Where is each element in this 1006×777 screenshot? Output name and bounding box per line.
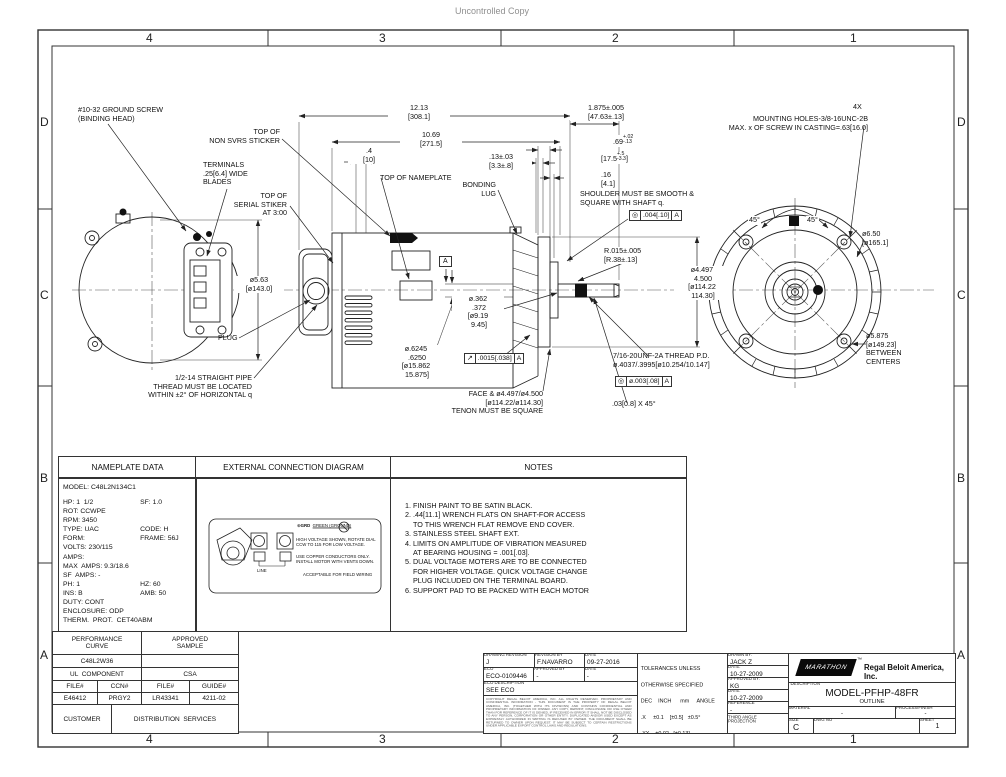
connection-note-2: USE COPPER CONDUCTORS ONLY. INSTALL MOTO…: [296, 555, 374, 565]
zone-right-b: B: [957, 471, 965, 485]
ul-file-value: E46412: [53, 692, 97, 704]
connection-note-3: ACCEPTABLE FOR FIELD WIRING: [303, 573, 372, 578]
dim-175-tol: +.5-3.3: [617, 152, 626, 162]
zone-bottom-2: 2: [612, 732, 619, 746]
title-block: MARATHON ™ Regal Beloit America, Inc. DE…: [788, 653, 956, 734]
nameplate-row: ENCLOSURE: ODP: [63, 607, 196, 616]
dim-point4: .4 [10]: [348, 147, 390, 164]
zone-top-2: 2: [612, 31, 619, 45]
zone-top-1: 1: [850, 31, 857, 45]
zone-bottom-1: 1: [850, 732, 857, 746]
eco-approved-by: -: [534, 673, 583, 680]
zone-right-a: A: [957, 648, 965, 662]
concentricity-icon: ◎: [616, 377, 627, 386]
nameplate-row: AMPS:: [63, 553, 196, 562]
marathon-logo: MARATHON: [795, 659, 857, 676]
dim-175-close: ]: [626, 154, 628, 163]
dim-r-fillet: R.015±.005 [R.38±.13]: [603, 247, 642, 264]
drawing-sheet: Uncontrolled Copy 4 3 2 1 4 3 2 1 D C B …: [0, 0, 1006, 777]
csa-file-value: LR43341: [141, 692, 189, 704]
notes-header: NOTES: [390, 456, 687, 478]
zone-bottom-4: 4: [146, 732, 153, 746]
zone-bottom-3: 3: [379, 732, 386, 746]
ul-ccn-value: PRGY2: [97, 692, 141, 704]
ul-component-label: UL COMPONENT: [53, 667, 141, 680]
dim-175-base: [17.5: [601, 154, 617, 163]
logo-row: MARATHON ™ Regal Beloit America, Inc.: [789, 654, 955, 683]
eco-date: -: [585, 673, 638, 680]
nameplate-model: MODEL: C48L2N134C1: [63, 483, 196, 492]
nameplate-row: FORM:FRAME: 56J: [63, 534, 196, 543]
ul-file-header: FILE#: [53, 680, 97, 692]
connection-line-label: LINE: [257, 569, 267, 574]
nameplate-row: ROT: CCWPE: [63, 507, 196, 516]
customer-value: DISTRIBUTION SERVICES: [111, 704, 238, 733]
ul-ccn-header: CCN#: [97, 680, 141, 692]
callout-terminals: TERMINALS .25[6.4] WIDE BLADES: [203, 161, 248, 187]
dim-face-depth-mm: [17.5+.5-3.3]: [600, 152, 629, 164]
drawing-subtitle: OUTLINE: [789, 699, 955, 705]
rear-end-view: [79, 209, 239, 364]
description-row: DESCRIPTION MODEL-PFHP-48FR OUTLINE: [789, 683, 955, 707]
perf-curve-header: PERFORMANCE CURVE: [53, 632, 141, 654]
approved-sample-header: APPROVED SAMPLE: [141, 632, 238, 654]
dim-body-length: 10.69 [271.5]: [400, 131, 462, 148]
nameplate-row: VOLTS: 230/115: [63, 543, 196, 552]
dim-dia-362: ø.362 .372 [ø9.19 9.45]: [452, 295, 504, 329]
nameplate-row: THERM. PROT. CET40ABM: [63, 616, 196, 625]
callout-mounting-holes: MOUNTING HOLES-3/8-16UNC-2B MAX. x OF SC…: [668, 115, 868, 132]
dim-face-depth: .69+.02-.13: [612, 135, 634, 147]
nameplate-row: TYPE: UACCODE: H: [63, 525, 196, 534]
trademark-symbol: ™: [857, 657, 862, 663]
dim-dia-563: ø5.63 [ø143.0]: [234, 276, 284, 293]
sheet-number: 1: [920, 724, 955, 730]
runout-icon: ↗: [465, 354, 476, 363]
zone-top-3: 3: [379, 31, 386, 45]
nameplate-row: PH: 1HZ: 60: [63, 580, 196, 589]
zone-left-c: C: [40, 288, 49, 302]
note-item-1: 1. FINISH PAINT TO BE SATIN BLACK.: [405, 501, 686, 510]
dim-dia-650: ø6.50 [ø165.1]: [862, 230, 888, 247]
dim-45-left: 45°: [748, 216, 761, 225]
zone-right-c: C: [957, 288, 966, 302]
nameplate-row: MAX AMPS: 9.3/18.6: [63, 562, 196, 571]
nameplate-row: RPM: 3450: [63, 516, 196, 525]
perf-curve-number: C48L2W36: [53, 654, 141, 667]
approved-sample-value: [141, 654, 238, 667]
dim-dia-625: ø.6245 .6250 [ø15.862 15.875]: [390, 345, 442, 379]
csa-file-header: FILE#: [141, 680, 189, 692]
callout-ground-screw: #10-32 GROUND SCREW (BINDING HEAD): [78, 106, 163, 123]
extension-lines: [160, 112, 700, 360]
callout-top-of-nameplate: TOP OF NAMEPLATE: [380, 174, 452, 183]
dim-dia-4497: ø4.497 4.500 [ø114.22 114.30]: [674, 266, 730, 300]
zone-top-4: 4: [146, 31, 153, 45]
dim-dia-5875: ø5.875 [ø149.23] BETWEEN CENTERS: [866, 332, 902, 366]
note-item-4: 4. LIMITS ON AMPLITUDE OF VIBRATION MEAS…: [405, 539, 686, 558]
dim-chamfer: .03[0.8] X 45°: [612, 400, 656, 409]
csa-guide-value: 4211-02: [189, 692, 238, 704]
note-thread: 7/16-20UNF-2A THREAD P.D. ø.4037/.3995[ø…: [613, 352, 710, 369]
dim-shaft-length: 1.875±.005 [47.63±.13]: [570, 104, 642, 121]
nameplate-row: INS: BAMB: 50: [63, 589, 196, 598]
nameplate-row: DUTY: CONT: [63, 598, 196, 607]
nameplate-row: HP: 1 1/2SF: 1.0: [63, 498, 196, 507]
process-finish-value: -: [896, 712, 955, 716]
revision-letter: J: [484, 659, 534, 666]
connection-grd-line: ⊕GRD GREEN (GROUND): [297, 524, 351, 529]
qty-4x: 4X: [853, 103, 862, 112]
note-item-3: 3. STAINLESS STEEL SHAFT EXT.: [405, 529, 686, 538]
callout-bonding-lug: BONDING LUG: [446, 181, 496, 198]
notes-box: 1. FINISH PAINT TO BE SATIN BLACK. 2. .4…: [390, 478, 687, 632]
customer-label: CUSTOMER: [53, 704, 111, 733]
performance-table: PERFORMANCE CURVE APPROVED SAMPLE C48L2W…: [52, 631, 239, 734]
note-shoulder: SHOULDER MUST BE SMOOTH & SQUARE WITH SH…: [580, 190, 694, 207]
connection-header: EXTERNAL CONNECTION DIAGRAM: [195, 456, 392, 478]
reference-value: -: [728, 707, 789, 714]
company-name: Regal Beloit America, Inc.: [864, 663, 955, 681]
revision-date: 09-27-2016: [585, 659, 638, 666]
copyright-notice: COPYRIGHT REGAL BELOIT AMERICA, INC. ALL…: [486, 698, 632, 728]
sheet-size: C: [789, 724, 813, 731]
fcf-face-runout: ↗.0015[.038]A: [464, 353, 524, 364]
nameplate-header: NAMEPLATE DATA: [58, 456, 197, 478]
dim-face-depth-base: .69: [613, 137, 623, 146]
note-face-tenon: FACE & ø4.497/ø4.500 [ø114.22/ø114.30] T…: [433, 390, 543, 416]
zone-right-d: D: [957, 115, 966, 129]
dim-face-depth-tol: +.02-.13: [623, 135, 633, 145]
zone-left-d: D: [40, 115, 49, 129]
revision-by: F.NAVARRO: [535, 659, 584, 666]
callout-serial-sticker: TOP OF SERIAL STIKER AT 3:00: [187, 192, 287, 218]
dim-13: .13±.03 [3.3±.8]: [470, 153, 532, 170]
dim-45-right: 45°: [806, 216, 819, 225]
csa-guide-header: GUIDE#: [189, 680, 238, 692]
revision-block: DRAWING REVISIONJ REVISION BYF.NAVARRO D…: [483, 653, 639, 734]
note-item-2: 2. .44[11.1] WRENCH FLATS ON SHAFT-FOR A…: [405, 510, 686, 529]
fcf-shoulder: ◎.004[.10]A: [629, 210, 682, 221]
dimension-lines: [258, 116, 828, 360]
approval-block: DRAWN BY:JACK Z DATE:10-27-2009 APPROVED…: [727, 653, 790, 734]
fcf-thread: ◎ø.003[.08]A: [615, 376, 672, 387]
zone-left-a: A: [40, 648, 48, 662]
csa-label: CSA: [141, 667, 238, 680]
uncontrolled-copy-watermark: Uncontrolled Copy: [455, 6, 529, 16]
material-row: MATERIAL- PROCESS/FINISH-: [789, 707, 955, 719]
tolerances-block: TOLERANCES UNLESS OTHERWISE SPECIFIED DE…: [637, 653, 729, 734]
model-number: MODEL-PFHP-48FR: [789, 688, 955, 699]
callout-plug: PLUG: [218, 334, 238, 343]
datum-a-flag: A: [439, 256, 452, 267]
eco-number: ECO-0109446: [484, 673, 533, 680]
nameplate-row: SF AMPS: -: [63, 571, 196, 580]
note-pipe-thread: 1/2-14 STRAIGHT PIPE THREAD MUST BE LOCA…: [132, 374, 252, 400]
dim-overall-length: 12.13 [308.1]: [388, 104, 450, 121]
projection-label: THIRD ANGLE PROJECTION: [728, 714, 772, 724]
note-item-6: 6. SUPPORT PAD TO BE PACKED WITH EACH MO…: [405, 586, 686, 595]
zone-left-b: B: [40, 471, 48, 485]
connection-note-1: HIGH VOLTAGE SHOWN, ROTATE DIAL CCW TO 1…: [296, 538, 376, 548]
note-item-5: 5. DUAL VOLTAGE MOTERS ARE TO BE CONNECT…: [405, 557, 686, 585]
callout-non-svrs-sticker: TOP OF NON SVRS STICKER: [160, 128, 280, 145]
dim-16: .16 [4.1]: [601, 171, 615, 188]
dwg-no-label: DWG NO: [814, 719, 890, 723]
nameplate-box: MODEL: C48L2N134C1 HP: 1 1/2SF: 1.0 ROT:…: [58, 478, 197, 632]
material-value: -: [789, 712, 895, 716]
concentricity-icon: ◎: [630, 211, 641, 220]
size-row: SIZEC DWG NO SHEET1: [789, 719, 955, 733]
eco-description: SEE ECO: [484, 687, 638, 694]
